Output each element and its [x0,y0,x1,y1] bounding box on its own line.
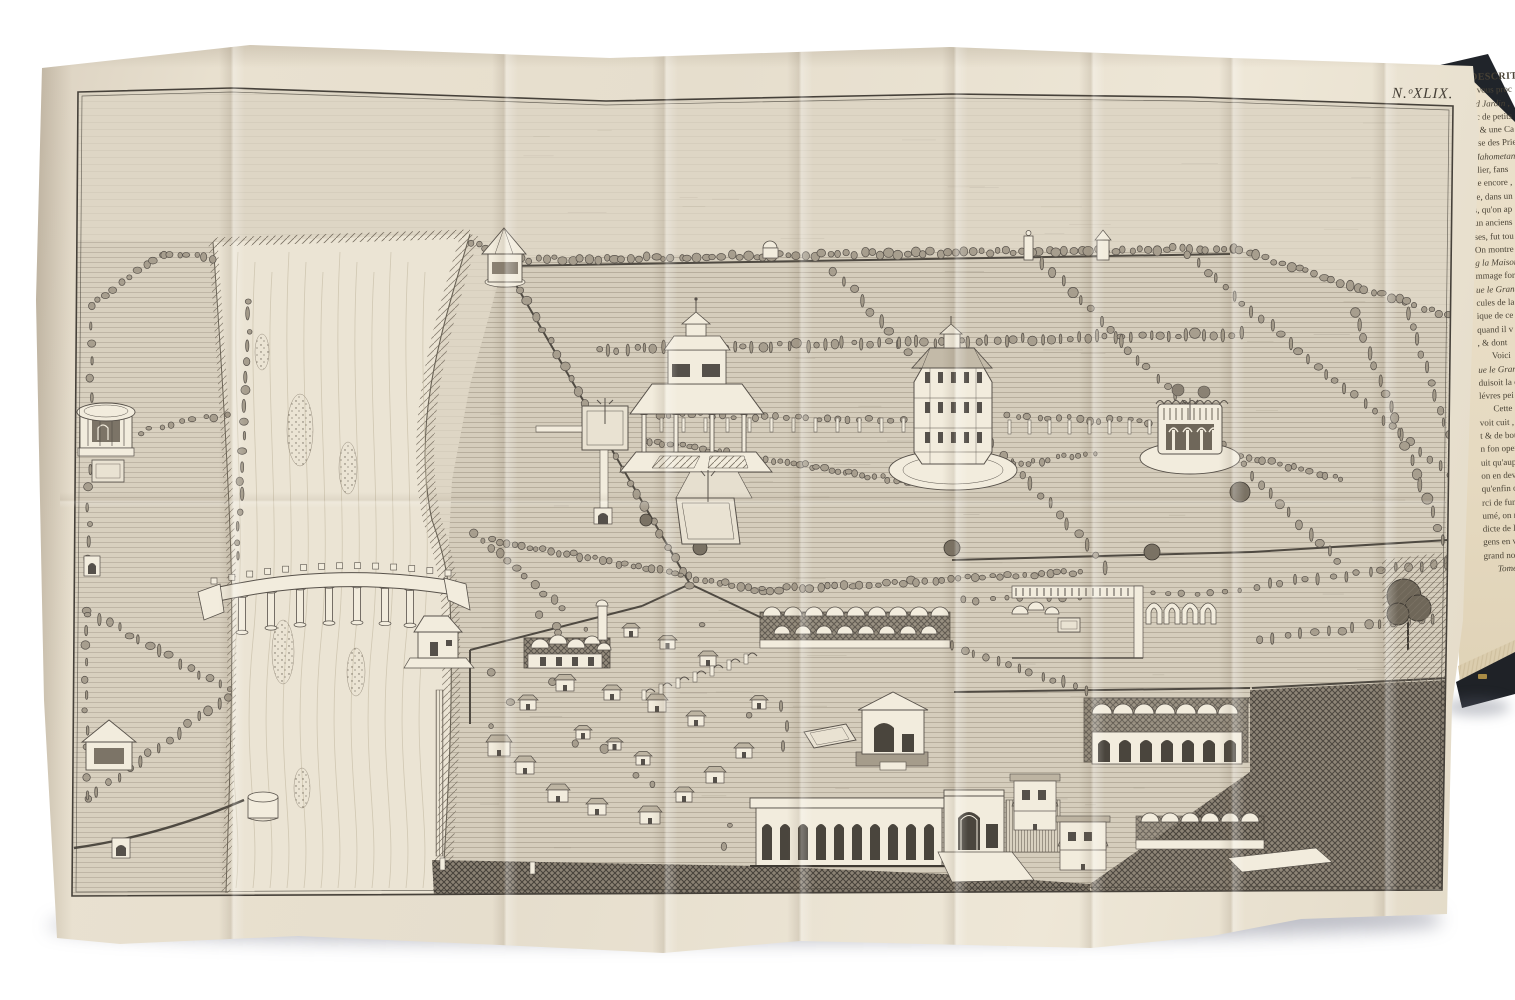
book-text-line: nd Jardin , [1471,96,1515,111]
engraving-canvas [0,0,1515,1000]
arcade-loggia [750,798,948,866]
book-text-line: umé, on n [1482,508,1515,523]
book-text-line: ulier, fans [1473,162,1515,177]
book-text-line: on en dev [1481,468,1515,483]
plate-number: N.ᵒXLIX. [1392,86,1472,104]
book-text-line: lévres pei [1479,388,1515,403]
photo-scene: DESCRITPIa vous procnd Jardin ,uc de pet… [0,0,1515,1000]
book-text-line: Mahometanes [1472,149,1515,164]
book-text-line: voit cuit , [1480,415,1515,430]
book-text-line: dicte de le [1483,521,1515,536]
book-shadow [1444,698,1510,716]
dome-row [1136,813,1264,849]
book-text-line: de encore , [1473,176,1515,191]
book-text-line: cules de la [1476,295,1515,310]
caravanserai [1084,698,1248,764]
book-text-line: Voici [1478,348,1515,363]
engraving-content [72,88,1453,896]
book-text-line: qu'enfin on [1481,481,1515,496]
gilt-clasp [1478,674,1487,679]
book-text-line: Cette d [1479,402,1515,417]
book-text-line: rci de fune [1482,495,1515,510]
book-text-line: DESCRITPI [1470,69,1515,84]
book-text-line: duisoit la c [1478,375,1515,390]
book-text-line: t & de bou [1480,428,1515,443]
gate-pillar [1024,236,1033,260]
book-text-line: un anciens [1474,215,1515,230]
book-text-line: Tome V [1484,561,1515,576]
book-text-line: uit qu'aup [1481,455,1515,470]
domed-bazaar [760,607,950,648]
book-text-line: ses, fut tou [1474,229,1515,244]
book-text-line: mmage fort [1476,269,1515,284]
book-text-line: re, dans un [1473,189,1515,204]
book-text-line: ique de ce [1477,309,1515,324]
book-text-line: ue le Grand [1478,362,1515,377]
book-text-line: ue le Grand [1476,282,1515,297]
book-text-line: gens en v [1483,534,1515,549]
book-text-line: On montre po [1475,242,1515,257]
book-text-line: s, qu'on ap [1474,202,1515,217]
book-text-line: a vous proc [1470,83,1515,98]
foldout-plate: N.ᵒXLIX. [0,0,1515,1000]
book-text-line: grand nom [1483,548,1515,563]
book-text-line: quand il v [1477,322,1515,337]
book-text-line: g la Maison [1475,255,1515,270]
book-text-line: , & dont [1477,335,1515,350]
book-text-line: n fon oper [1480,441,1515,456]
